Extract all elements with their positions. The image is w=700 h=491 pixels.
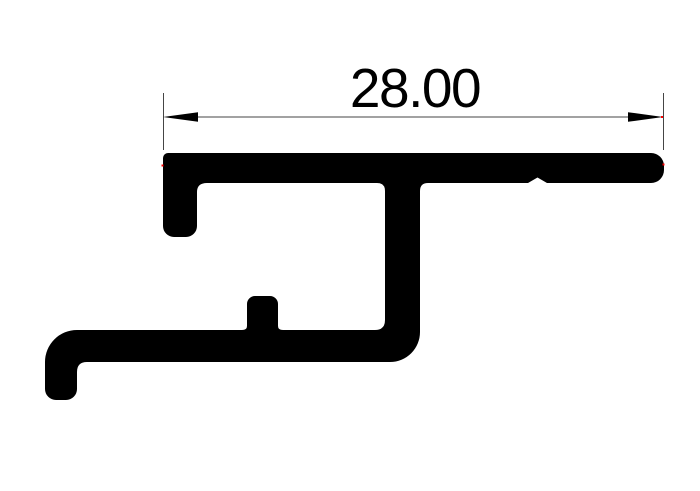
- profile-drawing-svg: 28.00: [0, 0, 700, 491]
- technical-drawing-canvas: 28.00: [0, 0, 700, 491]
- dimension-arrow-right-icon: [628, 112, 663, 122]
- dimension-label: 28.00: [350, 57, 480, 119]
- dimension-arrow-left-icon: [163, 112, 198, 122]
- profile-cross-section: [45, 153, 664, 400]
